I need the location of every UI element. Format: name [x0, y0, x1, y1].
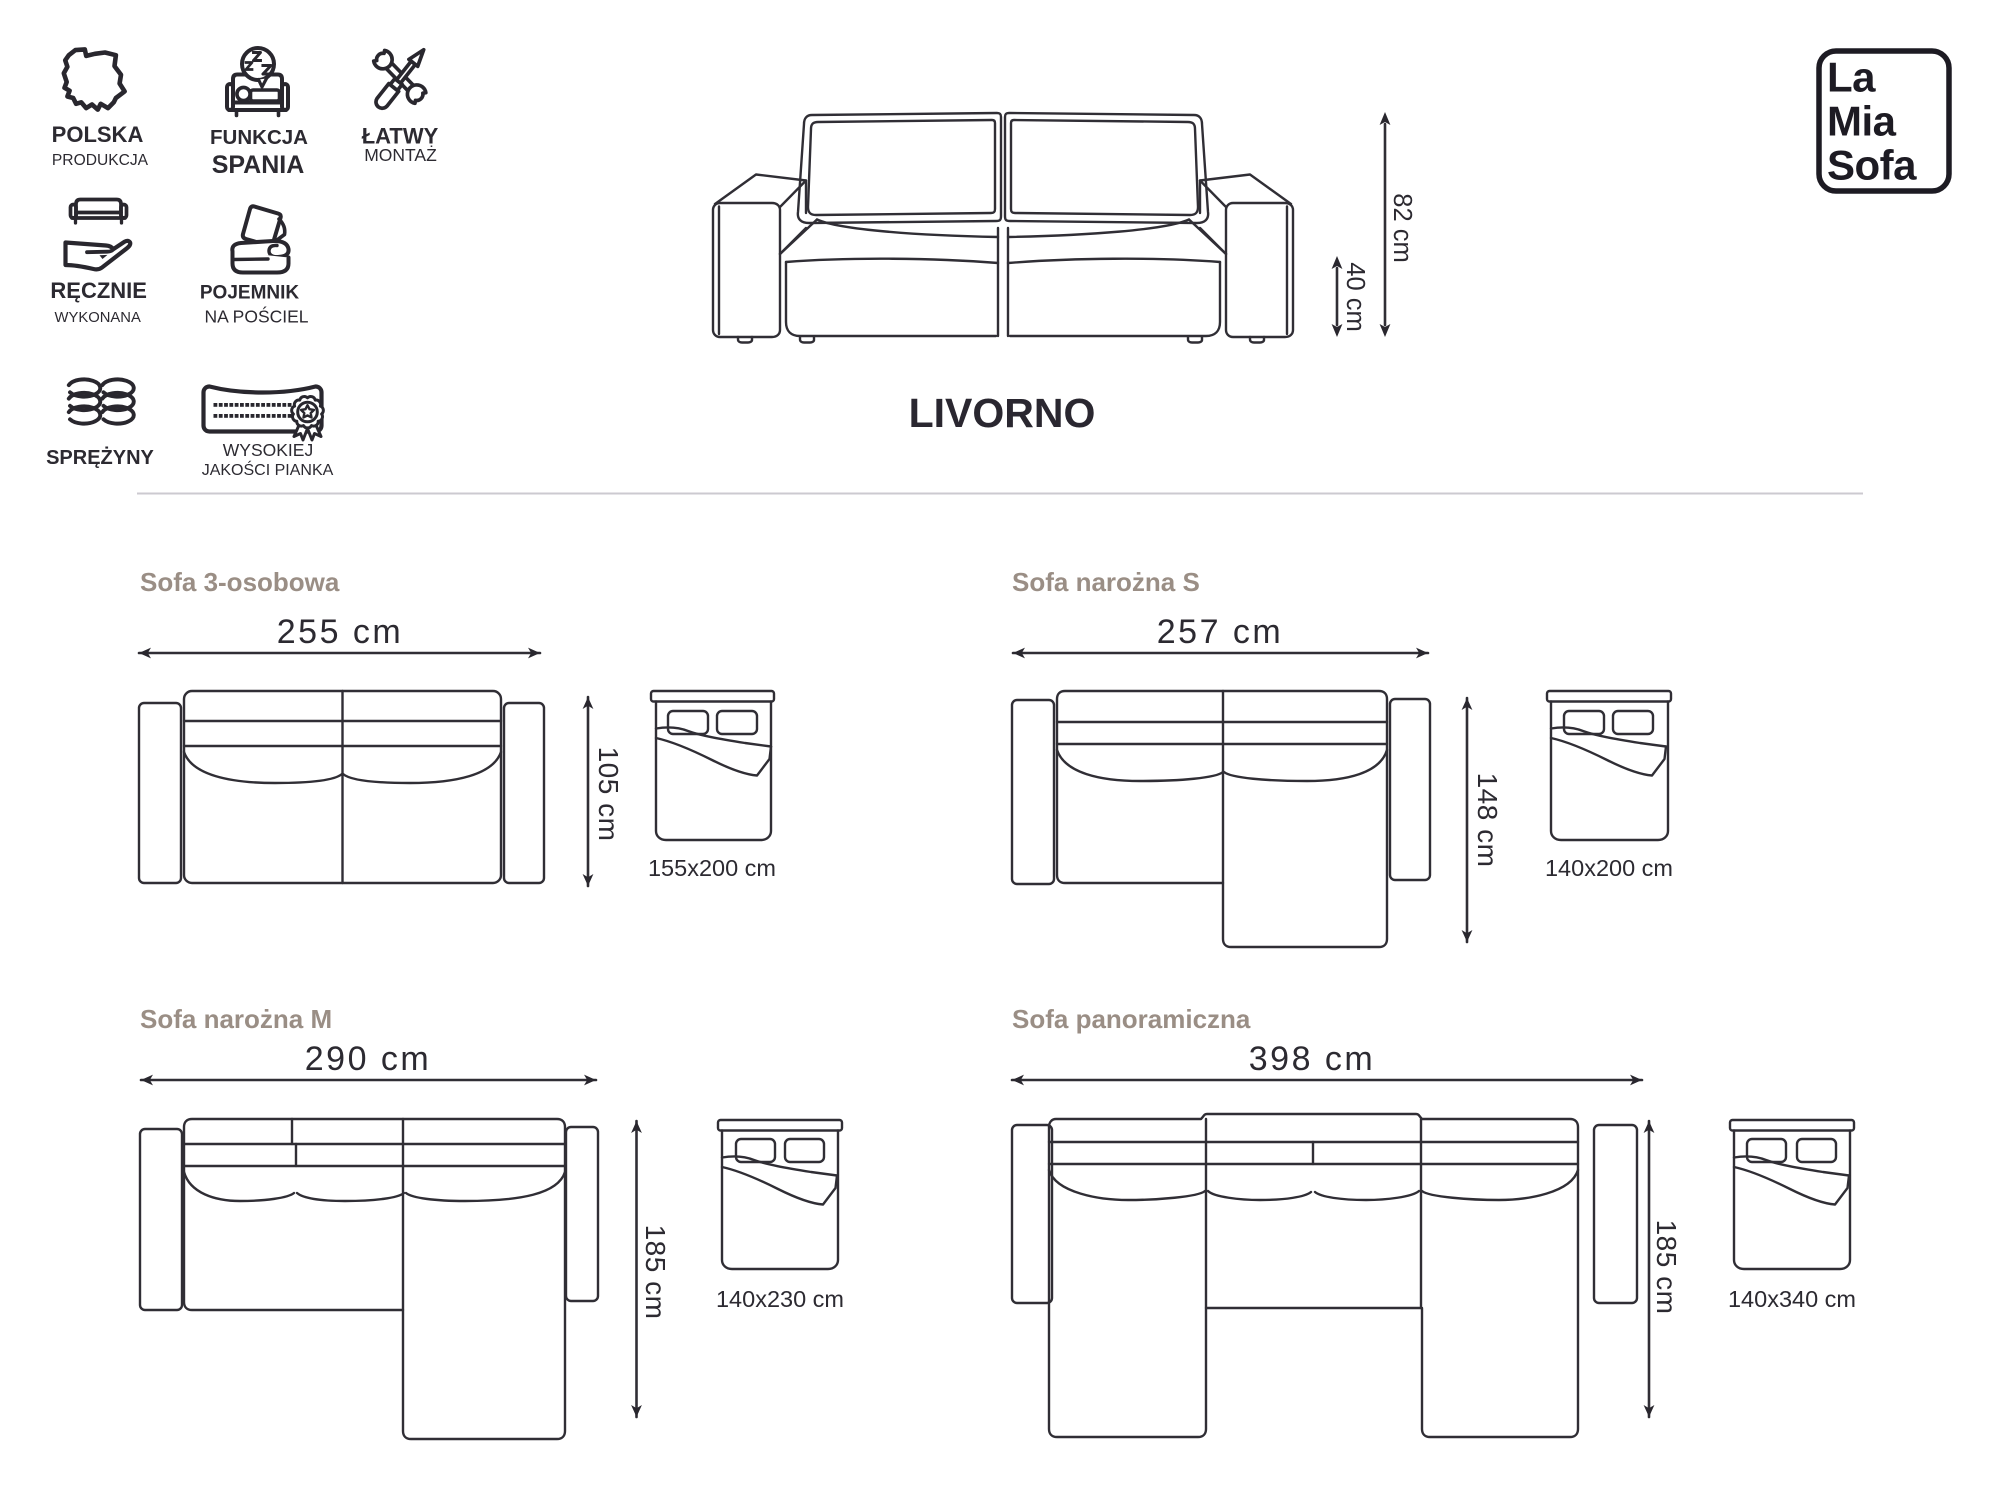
svg-text:RĘCZNIE: RĘCZNIE: [50, 278, 147, 303]
svg-text:185 cm: 185 cm: [640, 1225, 671, 1320]
svg-text:140x200 cm: 140x200 cm: [1545, 855, 1673, 881]
svg-text:WYKONANA: WYKONANA: [55, 310, 141, 326]
svg-text:WYSOKIEJ: WYSOKIEJ: [223, 440, 313, 460]
svg-text:40 cm: 40 cm: [1341, 262, 1369, 331]
svg-text:JAKOŚCI PIANKA: JAKOŚCI PIANKA: [202, 460, 334, 479]
svg-text:155x200 cm: 155x200 cm: [648, 855, 776, 881]
svg-text:PRODUKCJA: PRODUKCJA: [52, 152, 149, 169]
svg-text:POLSKA: POLSKA: [52, 122, 144, 147]
svg-text:140x340 cm: 140x340 cm: [1728, 1286, 1856, 1312]
svg-text:Sofa narożna S: Sofa narożna S: [1012, 567, 1200, 597]
svg-text:SPANIA: SPANIA: [212, 151, 305, 179]
svg-text:SPRĘŻYNY: SPRĘŻYNY: [46, 446, 154, 469]
svg-text:MONTAŻ: MONTAŻ: [364, 145, 437, 165]
svg-text:FUNKCJA: FUNKCJA: [210, 126, 308, 149]
svg-text:LIVORNO: LIVORNO: [909, 390, 1096, 436]
svg-text:Sofa: Sofa: [1827, 142, 1917, 189]
svg-text:140x230 cm: 140x230 cm: [716, 1286, 844, 1312]
svg-text:Sofa narożna M: Sofa narożna M: [140, 1004, 332, 1034]
svg-text:Mia: Mia: [1827, 98, 1897, 145]
svg-text:82 cm: 82 cm: [1388, 193, 1416, 262]
svg-text:255 cm: 255 cm: [277, 613, 404, 651]
svg-text:148 cm: 148 cm: [1472, 773, 1503, 868]
svg-text:105 cm: 105 cm: [593, 747, 624, 842]
svg-text:Sofa 3-osobowa: Sofa 3-osobowa: [140, 567, 340, 597]
svg-text:185 cm: 185 cm: [1651, 1220, 1682, 1315]
svg-text:NA POŚCIEL: NA POŚCIEL: [204, 306, 308, 327]
svg-text:290 cm: 290 cm: [305, 1040, 432, 1078]
svg-text:POJEMNIK: POJEMNIK: [200, 283, 300, 304]
svg-text:398 cm: 398 cm: [1249, 1040, 1376, 1078]
svg-text:La: La: [1827, 54, 1876, 101]
svg-text:257 cm: 257 cm: [1157, 613, 1284, 651]
svg-text:Sofa panoramiczna: Sofa panoramiczna: [1012, 1004, 1251, 1034]
